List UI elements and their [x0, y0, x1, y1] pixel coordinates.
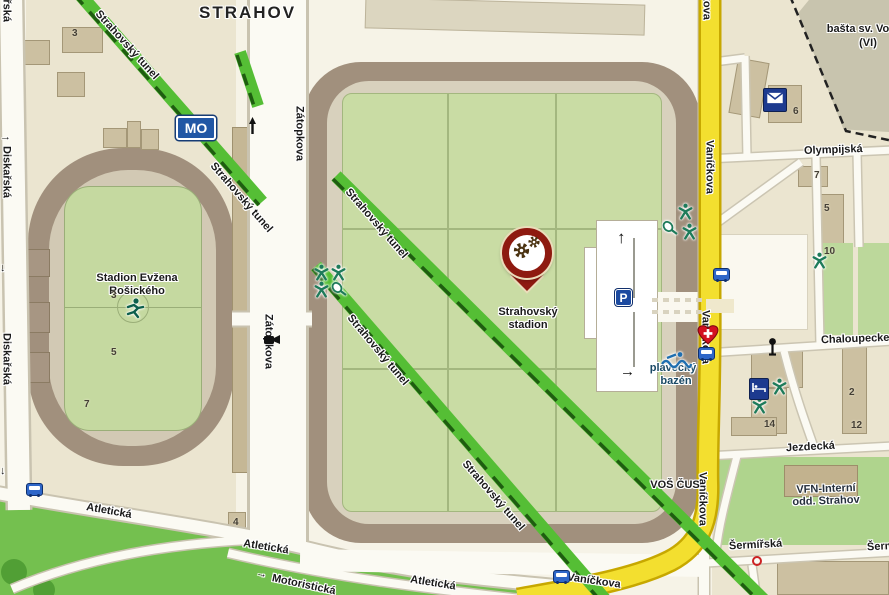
- runner-icon[interactable]: [123, 297, 145, 326]
- tennis-racket-icon[interactable]: [331, 282, 348, 302]
- street-label-sermirska: Šermířská: [867, 539, 889, 554]
- region-title: STRAHOV: [199, 3, 296, 23]
- overlay-layer: STRAHOV Diskařská → Diskařská ↓ Diskařsk…: [0, 0, 889, 595]
- poi-circle-icon[interactable]: [752, 556, 762, 566]
- street-label-diskarska: Diskařská: [0, 333, 13, 385]
- gear-icon: [527, 235, 541, 254]
- street-label-atleticka: Atletická: [409, 573, 456, 593]
- street-label-sermirska: Šermířská: [729, 538, 783, 553]
- gymnast-icon[interactable]: [682, 223, 697, 245]
- place-label-basta: bašta sv. Vo: [827, 23, 889, 36]
- tennis-racket-icon[interactable]: [662, 221, 679, 241]
- oneway-arrow: →: [0, 131, 11, 144]
- garage-arrow-right: →: [620, 363, 635, 380]
- place-label-basta: (VI): [859, 37, 877, 50]
- signpost-icon[interactable]: [766, 337, 779, 362]
- gymnast-icon[interactable]: [812, 252, 827, 274]
- ring-road-sign[interactable]: MO: [176, 116, 216, 140]
- place-label-strahovsky-stadion: Strahovský: [498, 306, 557, 319]
- place-label-vos-cus: VOŠ ČUS: [650, 479, 700, 492]
- building-number: 12: [851, 420, 862, 431]
- building-number: 7: [84, 399, 90, 410]
- oneway-arrow: ↓: [0, 262, 6, 275]
- gymnast-icon[interactable]: [678, 203, 693, 225]
- gymnast-icon[interactable]: [772, 378, 787, 400]
- building-number: 2: [849, 387, 855, 398]
- place-label-vfn: odd. Strahov: [792, 494, 860, 509]
- parking-sign[interactable]: P: [615, 289, 632, 306]
- street-label-diskarska: Diskařská: [0, 146, 13, 198]
- street-label-jezdecka: Jezdecká: [786, 440, 836, 455]
- building-number: 7: [814, 170, 820, 181]
- gymnast-icon[interactable]: [314, 281, 329, 303]
- monument-icon[interactable]: [247, 117, 258, 141]
- medical-heart-icon[interactable]: [697, 325, 719, 350]
- building-number: 5: [111, 347, 117, 358]
- garage-arrow-up: ↑: [617, 228, 626, 248]
- camera-icon[interactable]: [264, 332, 280, 350]
- street-label-zatopkova: Zátopkova: [293, 106, 306, 161]
- street-label-atleticka: Atletická: [85, 501, 132, 521]
- oneway-arrow: →: [255, 567, 268, 582]
- street-label-tunel: Strahovský tunel: [344, 312, 411, 388]
- street-label-tunel: Strahovský tunel: [207, 160, 275, 235]
- hotel-bed-icon[interactable]: [749, 378, 769, 400]
- street-label-vanickova: Vaníčkova: [566, 571, 621, 591]
- street-label-diskarska: Diskařská: [0, 0, 13, 22]
- gymnast-icon[interactable]: [752, 397, 767, 419]
- street-label-chaloupeckeho: Chaloupecke: [821, 332, 889, 347]
- place-label-plavecky-bazen: bazén: [660, 375, 691, 388]
- street-label-atleticka: Atletická: [242, 537, 289, 557]
- building-number: 14: [764, 419, 775, 430]
- swimmer-icon[interactable]: [660, 349, 692, 376]
- building-number: 6: [793, 106, 799, 117]
- street-label-tunel: Strahovský tunel: [92, 8, 161, 82]
- street-label-motoristicka: Motoristická: [271, 572, 337, 595]
- street-label-tunel: Strahovský tunel: [459, 458, 527, 533]
- street-label-vanickova: Vaníčkova: [703, 140, 716, 194]
- place-label-strahovsky-stadion: stadion: [508, 319, 547, 332]
- building-number: 3: [72, 28, 78, 39]
- street-label-vanickova: Vaníčkova: [700, 0, 713, 20]
- bus-stop-icon[interactable]: [26, 483, 43, 496]
- street-label-olympijska: Olympijská: [804, 143, 863, 158]
- building-number: 5: [824, 203, 830, 214]
- oneway-arrow: ↓: [0, 465, 6, 478]
- map-canvas[interactable]: STRAHOV Diskařská → Diskařská ↓ Diskařsk…: [0, 0, 889, 595]
- building-number: 3: [111, 290, 117, 301]
- building-number: 4: [233, 517, 239, 528]
- bus-stop-icon[interactable]: [553, 570, 570, 583]
- street-label-tunel: Strahovský tunel: [342, 186, 410, 261]
- place-label-stadion-rosicky: Stadion Evžena: [96, 272, 177, 285]
- post-office-icon[interactable]: [763, 88, 787, 112]
- poi-pin-strahovsky-stadion[interactable]: [502, 228, 552, 300]
- bus-stop-icon[interactable]: [713, 268, 730, 281]
- place-label-stadion-rosicky: Rošického: [109, 285, 165, 298]
